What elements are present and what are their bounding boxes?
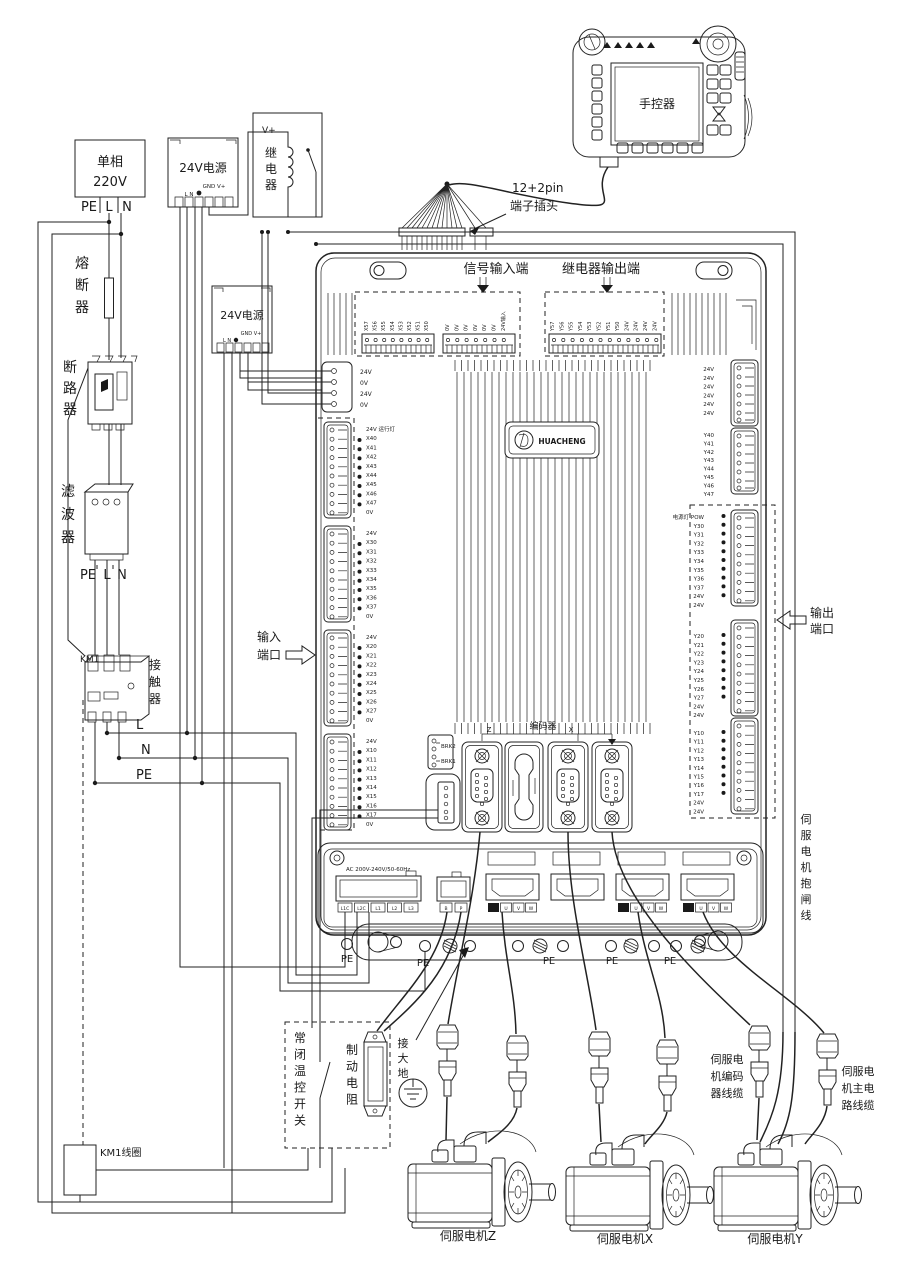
label-label-1: 触 bbox=[149, 675, 161, 689]
0-label-2: Y42 bbox=[703, 450, 714, 456]
input-led-dots bbox=[358, 438, 362, 818]
motor-connector-y bbox=[681, 852, 734, 912]
1-label-7: X36 bbox=[366, 595, 377, 601]
1-label-9: 0V bbox=[366, 614, 373, 620]
brake_line-label-5: 闸 bbox=[801, 893, 812, 906]
header-arrows bbox=[477, 277, 613, 293]
brake_line-label-2: 电 bbox=[801, 845, 812, 858]
terminal-plug-fan bbox=[399, 184, 493, 250]
brake_resistor-label-1: 动 bbox=[346, 1060, 358, 1074]
power-title-2: 220V bbox=[93, 175, 127, 190]
0-label-1: X40 bbox=[366, 436, 377, 442]
plug-label-1: 12+2pin bbox=[512, 181, 564, 195]
3-label-8: 24V bbox=[693, 801, 704, 807]
breaker_label-label-1: 路 bbox=[63, 381, 77, 397]
0-label-7: X46 bbox=[366, 491, 377, 497]
3-label-5: Y15 bbox=[693, 775, 705, 781]
3-label-7: Y17 bbox=[693, 792, 705, 798]
0-label-0: 24V 运行灯 bbox=[366, 425, 396, 433]
top_strip_y-label-6: Y51 bbox=[606, 322, 612, 332]
top_strip_0v-label-0: 0V bbox=[445, 324, 451, 331]
3-label-4: X13 bbox=[366, 776, 377, 782]
1-label-2: X31 bbox=[366, 549, 377, 555]
servo-motor-z bbox=[408, 1131, 556, 1228]
top-strip-y bbox=[549, 334, 661, 353]
1-label-9: 24V bbox=[693, 594, 704, 600]
label-label-0: 继 bbox=[265, 146, 277, 160]
fuse_label-label-1: 断 bbox=[75, 278, 89, 294]
2-label-9: 0V bbox=[366, 718, 373, 724]
top_strip_y-label-11: 24V bbox=[652, 321, 658, 331]
psu1: 24V电源 GND V+ L N bbox=[168, 138, 238, 207]
left-io-connector bbox=[240, 362, 352, 412]
pe_labels-label-4: PE bbox=[664, 956, 676, 967]
2-label-3: X22 bbox=[366, 663, 377, 669]
3-label-3: Y13 bbox=[693, 757, 705, 763]
1-label-0: 电源灯 POW bbox=[673, 513, 705, 521]
1-label-2: Y31 bbox=[693, 533, 704, 539]
relay-vplus: V+ bbox=[262, 126, 276, 136]
power-in-connector bbox=[336, 871, 421, 912]
pe_labels-label-0: PE bbox=[341, 954, 353, 965]
1-label-4: X33 bbox=[366, 568, 377, 574]
psu2: 24V电源 GND V+ L N bbox=[212, 286, 272, 353]
left_conn-label-2: 24V bbox=[360, 391, 373, 398]
left_conn-label-1: 0V bbox=[360, 380, 369, 387]
power_pins-label-4: L3 bbox=[408, 906, 414, 912]
thermal_switch-label-2: 温 bbox=[294, 1064, 306, 1078]
top_strip_x-label-3: X54 bbox=[390, 321, 396, 331]
3-label-2: X11 bbox=[366, 757, 377, 763]
3-label-1: Y11 bbox=[693, 740, 704, 746]
ac-rating-label: AC 200V-240V/50-60Hz bbox=[346, 867, 410, 873]
power_pins-label-1: L2C bbox=[357, 906, 366, 912]
0-label-6: Y46 bbox=[703, 483, 715, 489]
right_top-label-1: 24V bbox=[703, 376, 714, 382]
1-label-5: X34 bbox=[366, 577, 377, 583]
2-label-1: Y21 bbox=[693, 643, 704, 649]
brake_line-label-0: 伺 bbox=[801, 813, 812, 826]
0-label-8: X47 bbox=[366, 501, 377, 507]
1-label-6: X35 bbox=[366, 586, 377, 592]
left_conn-label-0: 24V bbox=[360, 369, 373, 376]
0-label-1: Y41 bbox=[703, 441, 714, 447]
bus-label-pe: PE bbox=[136, 768, 152, 783]
2-label-2: X21 bbox=[366, 653, 377, 659]
top_strip_y-label-10: 24V bbox=[643, 321, 649, 331]
0-label-5: Y45 bbox=[703, 475, 715, 481]
3-label-5: X14 bbox=[366, 785, 377, 791]
motor_pins-label-0: U bbox=[699, 906, 702, 912]
top_strip_y-label-7: Y50 bbox=[615, 322, 621, 332]
1-label-8: Y37 bbox=[693, 585, 705, 591]
psu2-pins-top: GND V+ bbox=[241, 331, 262, 337]
power-terminal-n: N bbox=[122, 200, 132, 215]
pendant-right-buttons bbox=[707, 65, 731, 135]
0-label-3: Y43 bbox=[703, 458, 715, 464]
motor_pins-label-1: V bbox=[517, 906, 521, 912]
1-label-5: Y34 bbox=[693, 559, 705, 565]
right_top-label-4: 24V bbox=[703, 402, 714, 408]
0-label-2: X41 bbox=[366, 445, 377, 451]
1-label-8: X37 bbox=[366, 605, 377, 611]
servo-motor-y bbox=[714, 1134, 862, 1231]
generated-labels: 熔断器断路器滤波器接触器继电器常闭温控开关制动电阻接大地伺服电机抱闸线输入端口输… bbox=[61, 146, 875, 1128]
right_top-label-0: 24V bbox=[703, 367, 714, 373]
encoder-axis-x: X bbox=[569, 726, 574, 734]
power-terminal-pe: PE bbox=[81, 200, 97, 215]
top_strip_y-label-3: Y54 bbox=[578, 322, 584, 332]
top_strip_0v-label-2: 0V bbox=[464, 324, 470, 331]
2-label-4: Y24 bbox=[693, 669, 705, 675]
line-filter: PE L N bbox=[80, 484, 133, 583]
psu1-title: 24V电源 bbox=[179, 161, 226, 175]
2-label-2: Y22 bbox=[693, 652, 704, 658]
2-label-5: Y25 bbox=[693, 678, 705, 684]
3-label-6: X15 bbox=[366, 794, 377, 800]
motor_pins-label-2: W bbox=[724, 906, 729, 912]
2-label-0: 24V bbox=[366, 635, 377, 641]
1-label-10: 24V bbox=[693, 603, 704, 609]
2-label-8: 24V bbox=[693, 704, 704, 710]
earth-label-2: 地 bbox=[398, 1067, 409, 1080]
3-label-0: Y10 bbox=[693, 731, 705, 737]
top_strip_y-label-8: 24V bbox=[624, 321, 630, 331]
filter_label-label-2: 器 bbox=[61, 530, 75, 546]
fuse_label-label-0: 熔 bbox=[75, 256, 89, 272]
brake_line-label-3: 机 bbox=[801, 860, 812, 874]
encoder-section: 编码器 Z X bbox=[482, 720, 616, 745]
motor_pins-label-0: U bbox=[504, 906, 507, 912]
pendant-scroll-wheel bbox=[735, 52, 752, 139]
label-label-2: 器 bbox=[265, 178, 277, 192]
encoder_cable-label-2: 器线缆 bbox=[711, 1086, 744, 1100]
contactor-ref: KM1 bbox=[80, 655, 99, 665]
psu1-pins-top: GND V+ bbox=[203, 184, 226, 190]
huacheng-logo: HUACHENG bbox=[505, 422, 599, 458]
top_strip_y-label-2: Y55 bbox=[569, 322, 575, 332]
top_strip_y-label-4: Y53 bbox=[587, 322, 593, 332]
output_port_label-label-1: 端口 bbox=[810, 622, 834, 636]
output-led-dots bbox=[722, 514, 726, 795]
psu2-title: 24V电源 bbox=[220, 308, 264, 322]
filter_label-label-1: 波 bbox=[61, 507, 75, 523]
encoder-port-x bbox=[548, 742, 588, 832]
top_strip_y-label-1: Y56 bbox=[559, 322, 565, 332]
2-label-0: Y20 bbox=[693, 634, 705, 640]
3-label-4: Y14 bbox=[693, 766, 705, 772]
3-label-7: X16 bbox=[366, 803, 377, 809]
pe_labels-label-1: PE bbox=[417, 958, 429, 969]
brk2-label: BRK2 bbox=[441, 744, 456, 750]
power_pins-label-3: L2 bbox=[392, 906, 398, 912]
motor-y-label: 伺服电机Y bbox=[747, 1232, 803, 1246]
filter_label-label-0: 滤 bbox=[61, 484, 75, 500]
top_strip_0v-label-4: 0V bbox=[482, 324, 488, 331]
3-label-9: 24V bbox=[693, 809, 704, 815]
0-label-7: Y47 bbox=[703, 492, 715, 498]
brake_resistor-label-3: 阻 bbox=[346, 1093, 358, 1107]
breaker_label-label-2: 器 bbox=[63, 402, 77, 418]
top-strip-0v bbox=[443, 334, 515, 353]
encoder-port-z bbox=[462, 742, 502, 832]
power_pins-label-0: L1C bbox=[341, 906, 350, 912]
thermal_switch-label-1: 闭 bbox=[294, 1048, 306, 1062]
1-label-1: Y30 bbox=[693, 524, 705, 530]
brake_line-label-4: 抱 bbox=[801, 876, 812, 890]
left_conn-label-3: 0V bbox=[360, 402, 369, 409]
fuse_label-label-2: 器 bbox=[75, 300, 89, 316]
1-label-4: Y33 bbox=[693, 550, 705, 556]
label-label-1: 电 bbox=[265, 162, 277, 176]
encoder-axis-z: Z bbox=[487, 726, 492, 734]
plug-label-2: 端子插头 bbox=[510, 199, 558, 213]
heatsink-fins bbox=[455, 360, 650, 734]
1-label-3: X32 bbox=[366, 559, 377, 565]
3-label-2: Y12 bbox=[693, 748, 704, 754]
brk-connector: BRK2 BRK1 bbox=[428, 735, 456, 769]
label-label-2: 器 bbox=[149, 692, 161, 706]
encoder_cable-label-1: 机编码 bbox=[711, 1069, 744, 1083]
3-label-6: Y16 bbox=[693, 783, 705, 789]
brake_pins-label-0: B bbox=[444, 906, 447, 912]
top_strip_x-label-2: X55 bbox=[381, 321, 387, 331]
breaker_label-label-0: 断 bbox=[63, 360, 77, 376]
top_strip_x-label-1: X56 bbox=[373, 321, 379, 331]
0-label-5: X44 bbox=[366, 473, 377, 479]
1-label-1: X30 bbox=[366, 540, 377, 546]
thermal_switch-label-5: 关 bbox=[294, 1114, 306, 1128]
pe_labels-label-2: PE bbox=[543, 956, 555, 967]
top_strip_y-label-5: Y52 bbox=[597, 322, 603, 332]
3-label-8: X17 bbox=[366, 813, 377, 819]
top_strip_x-label-4: X53 bbox=[398, 321, 404, 331]
3-label-0: 24V bbox=[366, 739, 377, 745]
input_port_label-label-1: 端口 bbox=[257, 648, 281, 662]
top_strip_x-label-7: X50 bbox=[424, 321, 430, 331]
2-label-6: Y26 bbox=[693, 687, 705, 693]
power-terminal-l: L bbox=[105, 200, 113, 215]
motor-connector-unused bbox=[551, 852, 604, 900]
encoder-label: 编码器 bbox=[529, 720, 556, 732]
wiring-diagram: 单相 220V PE L N PE L N KM1 L N PE KM1线圈 2… bbox=[0, 0, 900, 1265]
earth-connection bbox=[399, 947, 469, 1107]
signal-input-header: 信号输入端 bbox=[463, 261, 528, 277]
top_strip_y-label-0: Y57 bbox=[550, 322, 556, 332]
motor_pins-label-1: V bbox=[712, 906, 716, 912]
motor-connector-x bbox=[616, 852, 669, 912]
right_top-label-5: 24V bbox=[703, 411, 714, 417]
output-port-arrow bbox=[777, 611, 806, 629]
1-label-0: 24V bbox=[366, 531, 377, 537]
bus-label-n: N bbox=[141, 743, 151, 758]
diagram-canvas: 单相 220V PE L N PE L N KM1 L N PE KM1线圈 2… bbox=[0, 0, 900, 1265]
motor_pins-label-2: W bbox=[529, 906, 534, 912]
power-title-1: 单相 bbox=[97, 155, 123, 170]
pe_labels-label-3: PE bbox=[606, 956, 618, 967]
psu2-wires bbox=[224, 232, 322, 1213]
earth-label-0: 接 bbox=[398, 1037, 409, 1050]
right_top-label-2: 24V bbox=[703, 385, 714, 391]
motor_pins-label-2: W bbox=[659, 906, 664, 912]
teach-pendant: 手控器 bbox=[573, 26, 752, 167]
indicator-leds bbox=[603, 38, 700, 48]
0-label-4: Y44 bbox=[703, 467, 715, 473]
1-label-6: Y35 bbox=[693, 568, 705, 574]
right_top-label-3: 24V bbox=[703, 393, 714, 399]
label-label-0: 接 bbox=[149, 657, 161, 672]
2-label-4: X23 bbox=[366, 672, 377, 678]
0-label-4: X43 bbox=[366, 464, 377, 470]
top_strip_x-label-5: X52 bbox=[407, 321, 413, 331]
contactor: KM1 bbox=[80, 655, 149, 722]
power_pins-label-2: L1 bbox=[375, 906, 381, 912]
encoder_cable-label-0: 伺服电 bbox=[711, 1053, 744, 1066]
thermal_switch-label-3: 控 bbox=[294, 1081, 306, 1095]
pendant-cable-port bbox=[600, 157, 618, 167]
relay-output-header: 继电器输出端 bbox=[562, 261, 640, 277]
top_strip_0v-label-1: 0V bbox=[454, 324, 460, 331]
servo-motor-x bbox=[566, 1134, 714, 1231]
brake_resistor-label-2: 电 bbox=[346, 1076, 358, 1090]
3-label-1: X10 bbox=[366, 748, 377, 754]
2-label-9: 24V bbox=[693, 713, 704, 719]
bottom-power-panel: AC 200V-240V/50-60Hz bbox=[318, 843, 763, 933]
2-label-1: X20 bbox=[366, 644, 377, 650]
motor_pins-label-1: V bbox=[647, 906, 651, 912]
0-label-0: Y40 bbox=[703, 433, 715, 439]
1-label-3: Y32 bbox=[693, 541, 704, 547]
feed-wires bbox=[38, 213, 345, 1213]
2-label-7: X26 bbox=[366, 699, 377, 705]
fuse bbox=[105, 278, 114, 318]
brk1-label: BRK1 bbox=[441, 759, 456, 765]
power_cable-label-1: 机主电 bbox=[842, 1081, 875, 1095]
input_port_label-label-0: 输入 bbox=[257, 629, 281, 644]
brake_line-label-6: 线 bbox=[801, 908, 812, 922]
single-phase-power-box: 单相 220V PE L N bbox=[75, 140, 145, 215]
2-label-6: X25 bbox=[366, 690, 377, 696]
thermal_switch-label-4: 开 bbox=[294, 1097, 306, 1111]
0-label-3: X42 bbox=[366, 455, 377, 461]
earth-label-1: 大 bbox=[398, 1051, 409, 1065]
mounting-plate bbox=[342, 924, 743, 960]
pendant-left-buttons bbox=[592, 65, 602, 140]
logo-text: HUACHENG bbox=[538, 437, 585, 446]
3-label-3: X12 bbox=[366, 767, 377, 773]
2-label-5: X24 bbox=[366, 681, 377, 687]
top_strip_0v-label-5: 0V bbox=[492, 324, 498, 331]
0-label-6: X45 bbox=[366, 482, 377, 488]
km1-coil-label: KM1线圈 bbox=[100, 1146, 142, 1159]
keyhole-right bbox=[695, 931, 729, 951]
bus-label-l: L bbox=[136, 718, 144, 733]
pendant-label: 手控器 bbox=[639, 97, 675, 111]
0-label-9: 0V bbox=[366, 510, 373, 516]
power_cable-label-2: 路线缆 bbox=[842, 1098, 875, 1112]
output_port_label-label-0: 输出 bbox=[810, 605, 834, 620]
input-port-arrow bbox=[286, 646, 315, 664]
circuit-breaker bbox=[68, 356, 137, 656]
top_strip_x-label-0: X57 bbox=[364, 321, 370, 331]
filter-terminal-pe: PE bbox=[80, 568, 96, 583]
3-label-9: 0V bbox=[366, 822, 373, 828]
motor-connector-z bbox=[486, 852, 539, 912]
top_strip_0v-label-6: 24V输入 bbox=[500, 311, 507, 331]
top_strip_x-label-6: X51 bbox=[416, 321, 422, 331]
top_strip_0v-label-3: 0V bbox=[473, 324, 479, 331]
2-label-7: Y27 bbox=[693, 696, 705, 702]
power_cable-label-0: 伺服电 bbox=[842, 1065, 875, 1078]
plug-label: 12+2pin 端子插头 bbox=[470, 181, 564, 235]
brake-connector bbox=[437, 872, 470, 912]
2-label-3: Y23 bbox=[693, 660, 705, 666]
brake_pins-label-1: P bbox=[460, 906, 463, 912]
brake_resistor-label-0: 制 bbox=[346, 1043, 358, 1057]
top-strip-x bbox=[362, 334, 434, 353]
motor_pins-label-0: U bbox=[634, 906, 637, 912]
relay-box: V+ bbox=[253, 113, 322, 217]
motor-x-label: 伺服电机X bbox=[597, 1232, 653, 1246]
2-label-8: X27 bbox=[366, 709, 377, 715]
encoder-port-y bbox=[592, 742, 632, 832]
brake_line-label-1: 服 bbox=[801, 829, 812, 842]
km1-coil: KM1线圈 bbox=[64, 1145, 308, 1202]
1-label-7: Y36 bbox=[693, 577, 705, 583]
motor-z-label: 伺服电机Z bbox=[440, 1229, 496, 1243]
thermal_switch-label-0: 常 bbox=[294, 1031, 306, 1045]
top_strip_y-label-9: 24V bbox=[634, 321, 640, 331]
